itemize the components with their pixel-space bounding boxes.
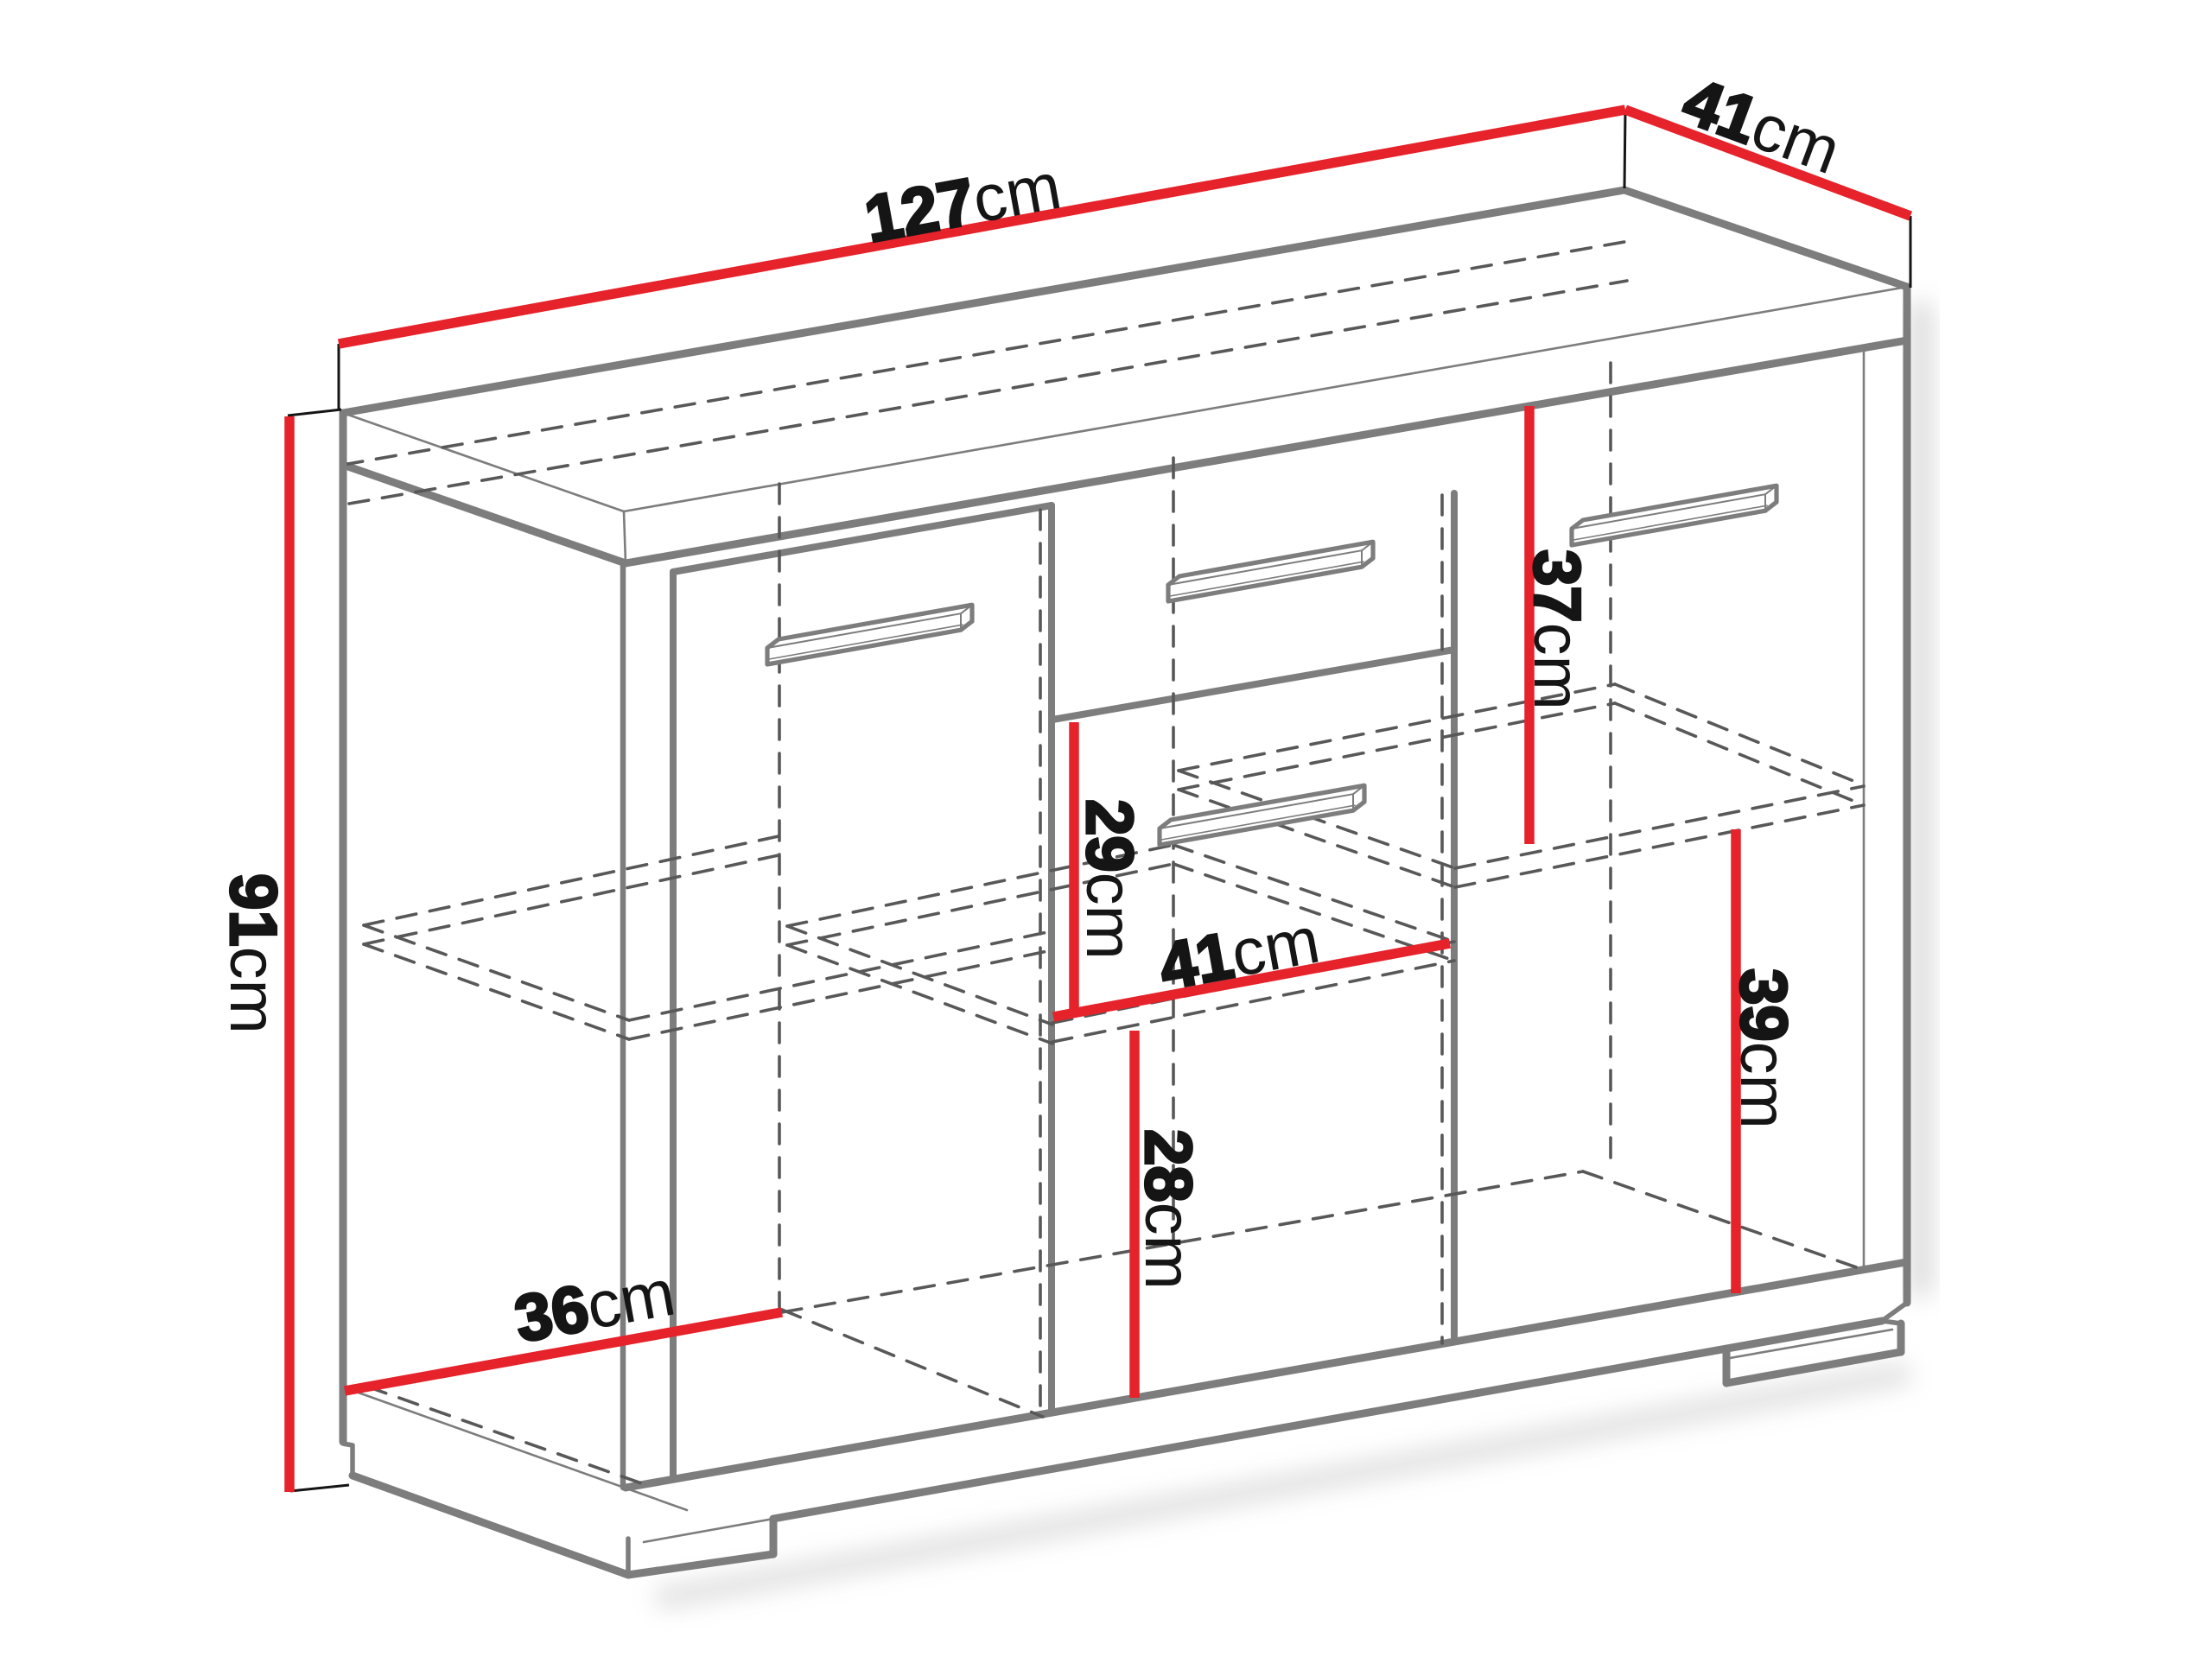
svg-text:29cm: 29cm <box>1072 799 1146 960</box>
svg-text:39cm: 39cm <box>1726 968 1800 1129</box>
svg-text:37cm: 37cm <box>1520 549 1593 710</box>
svg-text:91cm: 91cm <box>216 873 289 1034</box>
svg-text:28cm: 28cm <box>1131 1129 1205 1290</box>
